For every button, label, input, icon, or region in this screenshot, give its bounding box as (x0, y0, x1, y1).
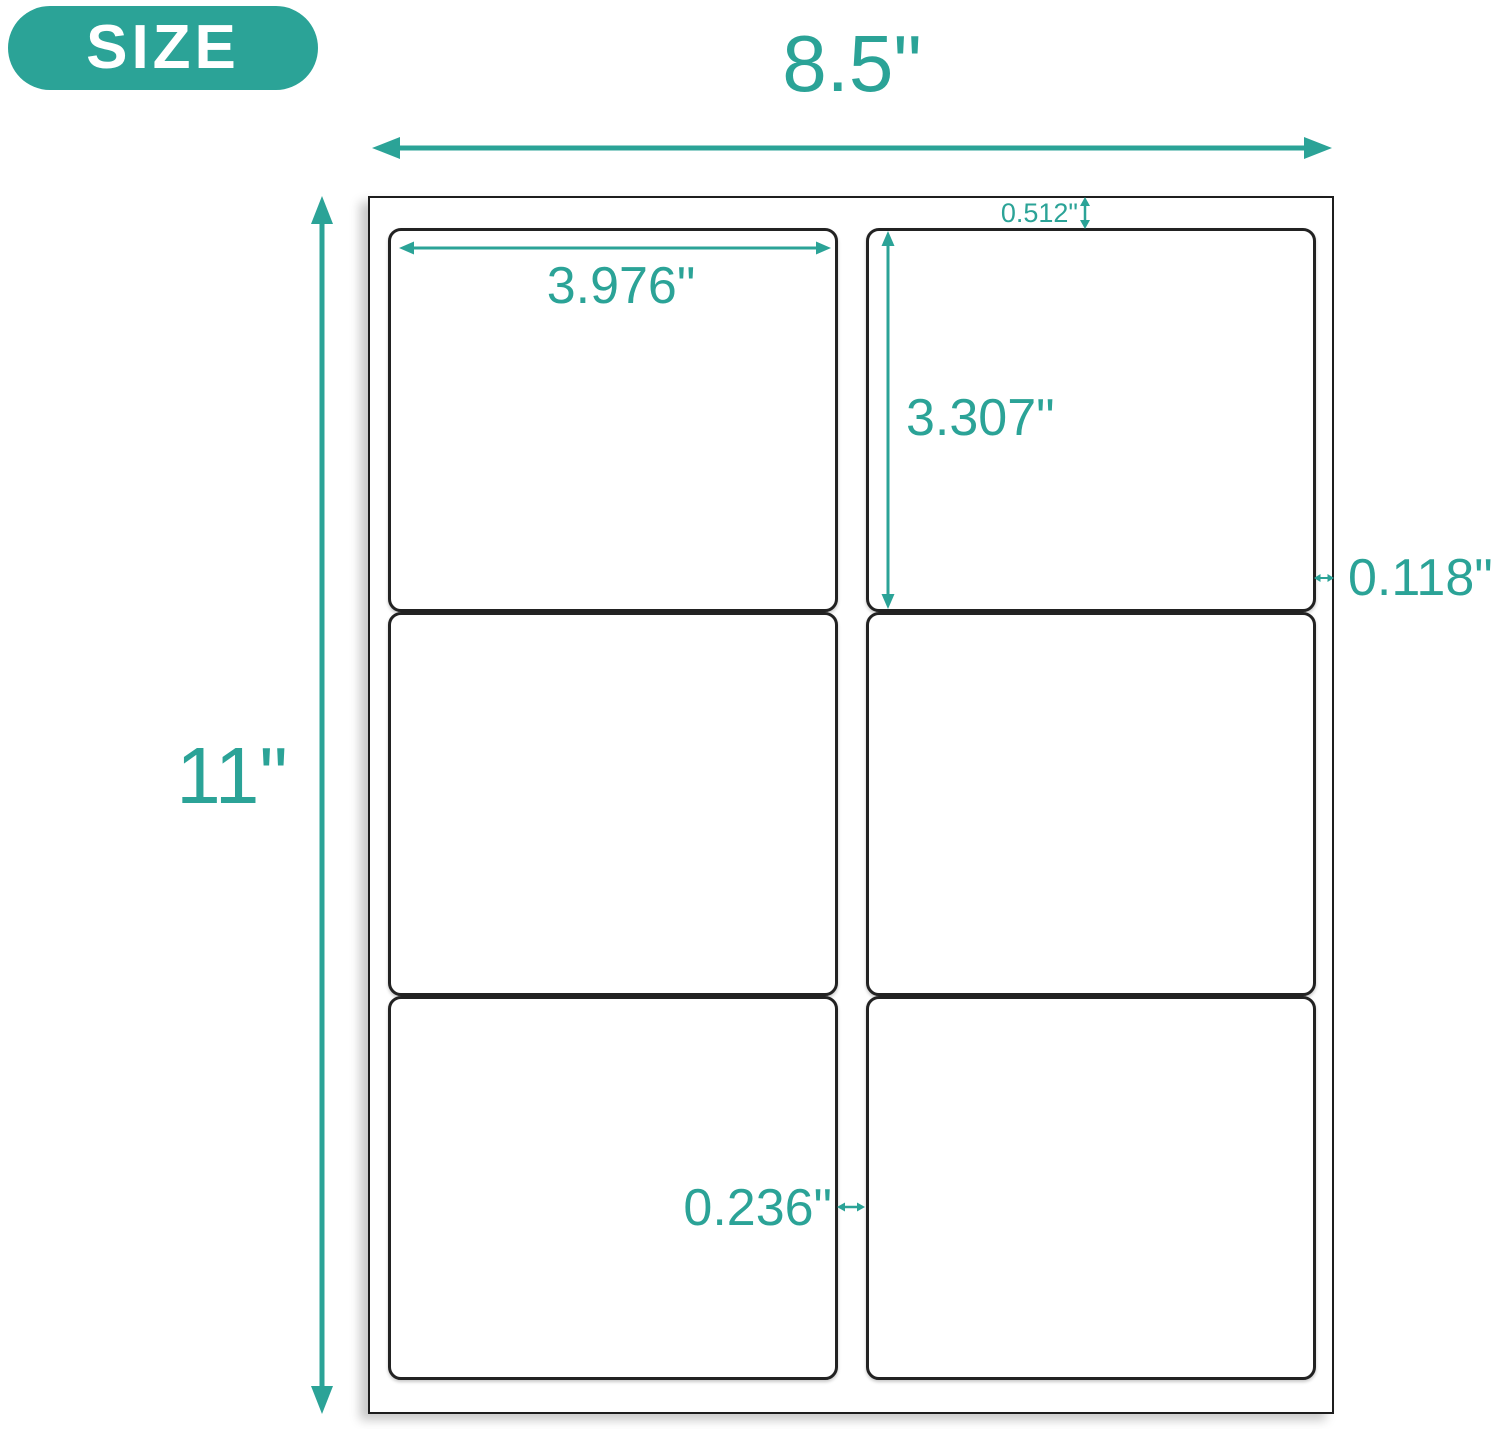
label-cell-r3c2 (866, 996, 1316, 1380)
top-margin-dimension-label: 0.512" (938, 200, 1078, 227)
label-sheet-size-diagram: SIZE 8.5" 11" 3.976" 3.307" 0.512" (0, 0, 1500, 1429)
label-cell-r2c1 (388, 612, 838, 996)
label-width-dimension-label: 3.976" (521, 260, 721, 312)
column-gap-double-arrow-icon (836, 1198, 866, 1216)
sheet-width-dimension-label: 8.5" (752, 24, 952, 104)
side-margin-dimension-label: 0.118" (1348, 552, 1493, 604)
label-height-double-arrow-icon (878, 230, 898, 610)
sheet-height-dimension-label: 11" (132, 736, 332, 816)
size-badge-label: SIZE (86, 17, 240, 79)
label-width-double-arrow-icon (398, 238, 832, 258)
sheet-height-double-arrow-icon (306, 194, 338, 1416)
size-badge: SIZE (8, 6, 318, 90)
label-sheet (368, 196, 1334, 1414)
column-gap-dimension-label: 0.236" (660, 1182, 832, 1234)
sheet-width-double-arrow-icon (370, 132, 1334, 164)
label-height-dimension-label: 3.307" (906, 392, 1055, 444)
top-margin-double-arrow-icon (1076, 196, 1094, 230)
label-cell-r2c2 (866, 612, 1316, 996)
side-margin-double-arrow-icon (1313, 570, 1335, 586)
